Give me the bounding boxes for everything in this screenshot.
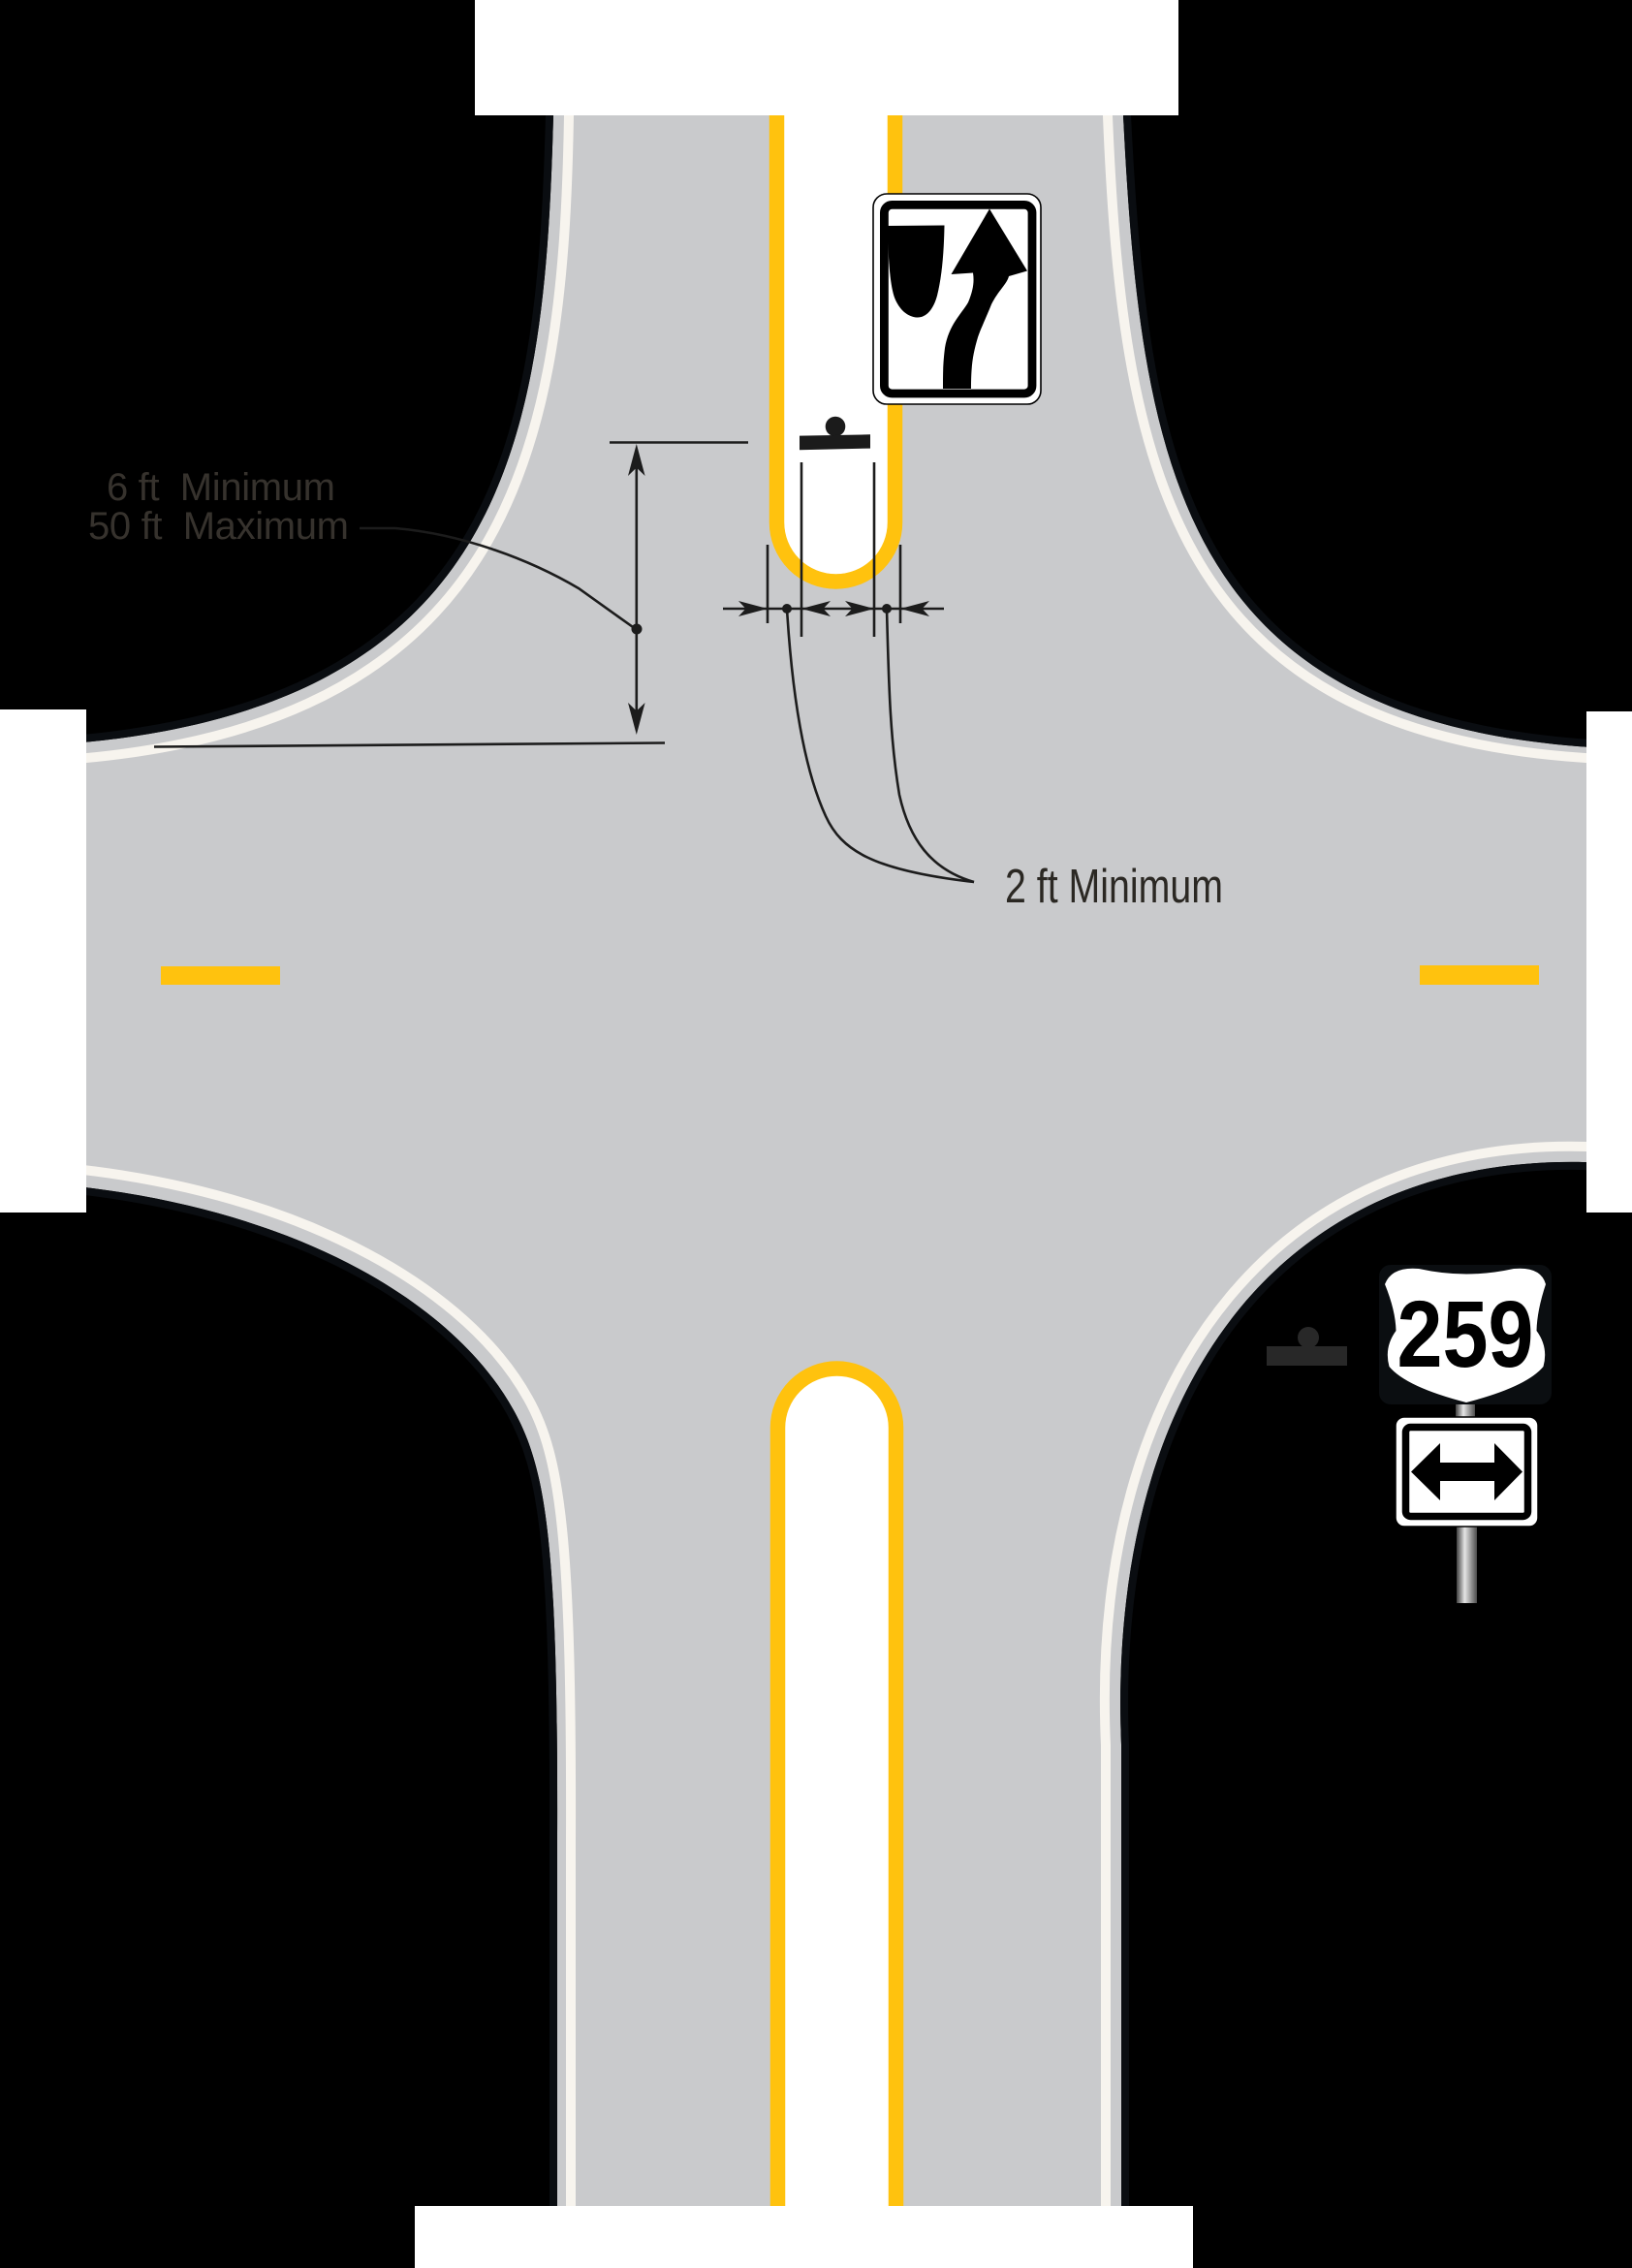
svg-text:50 ft Maximum: 50 ft Maximum xyxy=(88,505,349,548)
svg-text:2 ft Minimum: 2 ft Minimum xyxy=(1005,861,1223,913)
svg-text:6 ft Minimum: 6 ft Minimum xyxy=(107,466,335,509)
svg-text:259: 259 xyxy=(1397,1281,1534,1387)
